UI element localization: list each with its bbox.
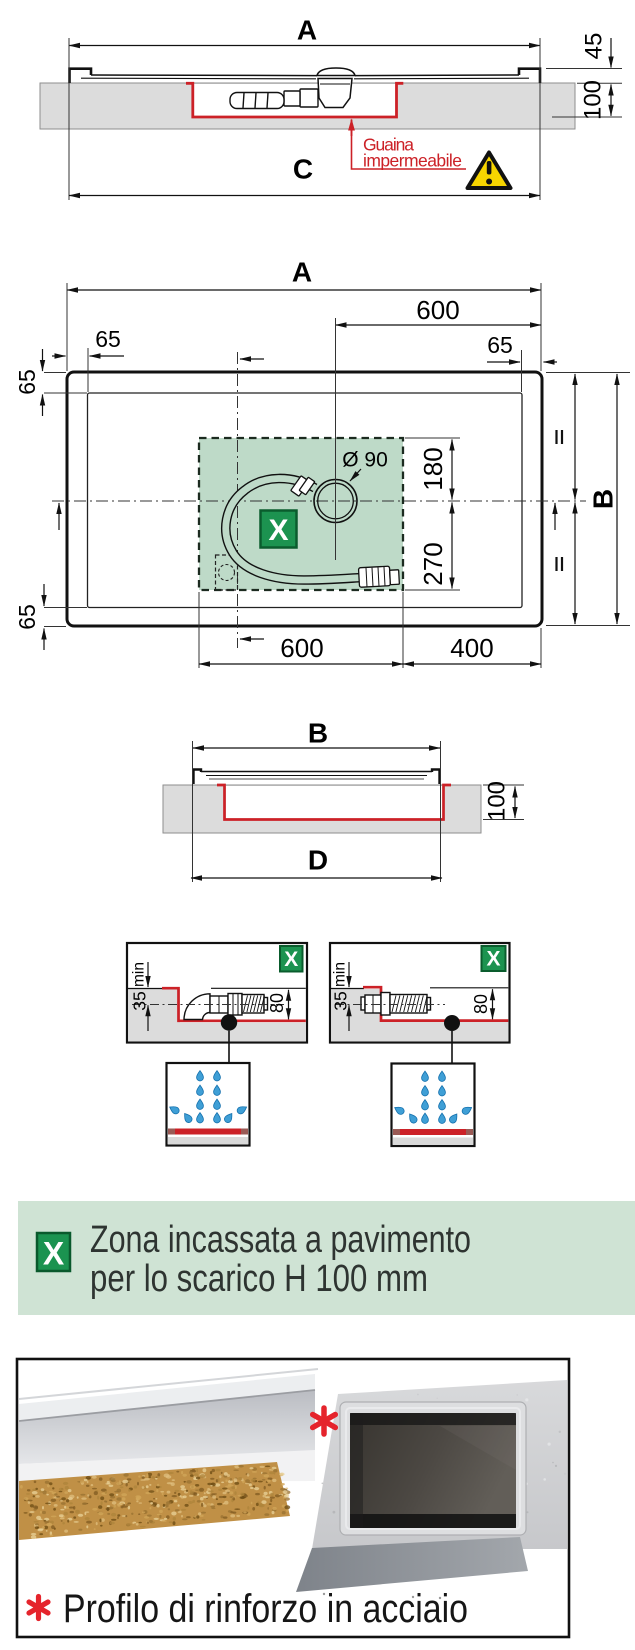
svg-text:min: min <box>332 962 349 987</box>
svg-text:Zona incassata a pavimento: Zona incassata a pavimento <box>90 1219 471 1261</box>
svg-text:600: 600 <box>416 295 459 325</box>
svg-text:65: 65 <box>14 604 40 630</box>
svg-text:Ø 90: Ø 90 <box>342 449 388 472</box>
svg-text:X: X <box>486 948 500 971</box>
svg-text:per lo scarico H 100 mm: per lo scarico H 100 mm <box>90 1258 428 1300</box>
svg-text:D: D <box>308 845 328 876</box>
svg-text:35: 35 <box>331 991 351 1010</box>
svg-text:45: 45 <box>581 33 608 60</box>
svg-text:80: 80 <box>471 994 491 1014</box>
svg-text:400: 400 <box>450 633 493 663</box>
svg-text:X: X <box>284 948 298 971</box>
svg-text:100: 100 <box>580 80 607 120</box>
svg-text:Profilo di rinforzo in acciaio: Profilo di rinforzo in acciaio <box>63 1587 468 1631</box>
svg-text:B: B <box>588 489 619 509</box>
svg-text:A: A <box>292 257 312 288</box>
svg-text:65: 65 <box>14 369 40 395</box>
svg-text:65: 65 <box>95 326 121 352</box>
svg-text:35: 35 <box>130 991 150 1010</box>
svg-text:270: 270 <box>418 542 448 585</box>
svg-text:65: 65 <box>487 332 513 358</box>
svg-text:X: X <box>268 514 288 547</box>
svg-text:80: 80 <box>267 993 287 1013</box>
svg-text:A: A <box>297 15 317 46</box>
svg-text:100: 100 <box>484 781 511 821</box>
svg-text:C: C <box>293 154 313 185</box>
svg-text:180: 180 <box>418 447 448 490</box>
svg-text:X: X <box>43 1236 65 1272</box>
svg-text:min: min <box>131 962 148 987</box>
svg-text:600: 600 <box>280 633 323 663</box>
svg-text:impermeabile: impermeabile <box>363 151 462 171</box>
svg-text:B: B <box>308 718 328 749</box>
